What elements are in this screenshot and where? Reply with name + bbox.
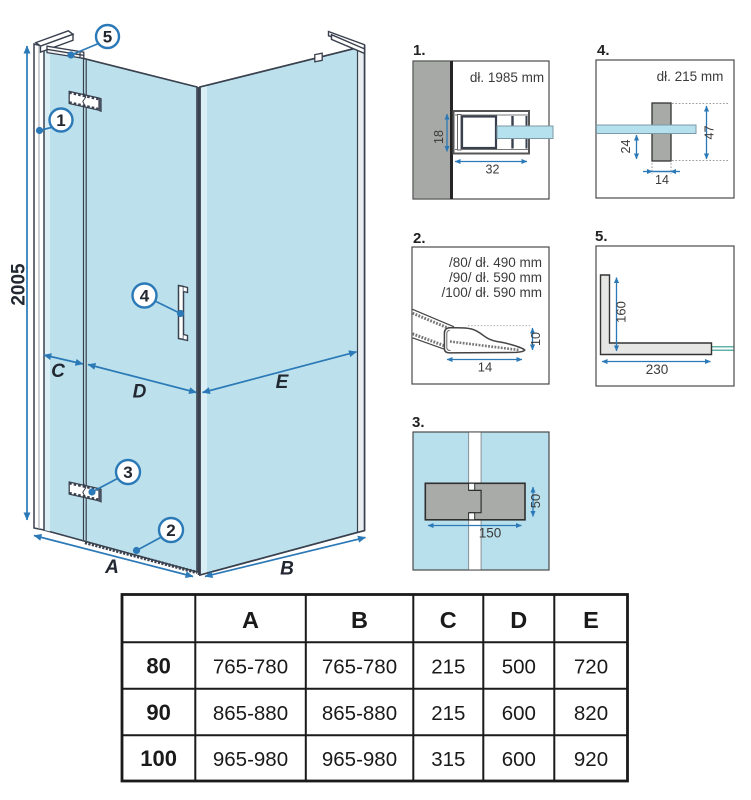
svg-text:600: 600 xyxy=(502,702,536,725)
svg-text:965-980: 965-980 xyxy=(213,748,288,771)
svg-text:765-780: 765-780 xyxy=(213,656,288,679)
svg-text:1.: 1. xyxy=(413,42,426,59)
svg-text:14: 14 xyxy=(655,173,669,187)
svg-text:dł. 1985 mm: dł. 1985 mm xyxy=(470,70,544,85)
svg-text:/90/ dł. 590 mm: /90/ dł. 590 mm xyxy=(449,270,542,285)
svg-text:18: 18 xyxy=(432,130,446,144)
svg-text:1: 1 xyxy=(56,111,65,130)
svg-text:32: 32 xyxy=(486,163,500,177)
svg-text:500: 500 xyxy=(502,656,536,679)
svg-text:315: 315 xyxy=(431,748,465,771)
svg-text:600: 600 xyxy=(502,748,536,771)
svg-text:14: 14 xyxy=(478,360,492,375)
svg-text:765-780: 765-780 xyxy=(322,656,397,679)
svg-text:965-980: 965-980 xyxy=(322,748,397,771)
svg-text:865-880: 865-880 xyxy=(213,702,288,725)
svg-text:150: 150 xyxy=(479,526,502,541)
svg-text:2: 2 xyxy=(166,521,175,540)
svg-text:24: 24 xyxy=(619,140,633,154)
svg-text:C: C xyxy=(51,361,65,382)
svg-text:4: 4 xyxy=(140,287,150,306)
svg-text:865-880: 865-880 xyxy=(322,702,397,725)
svg-text:5.: 5. xyxy=(595,228,608,245)
svg-text:A: A xyxy=(242,607,259,633)
svg-text:230: 230 xyxy=(646,362,669,377)
svg-text:/100/ dł. 590 mm: /100/ dł. 590 mm xyxy=(441,285,542,300)
svg-text:/80/ dł. 490 mm: /80/ dł. 490 mm xyxy=(449,255,542,270)
svg-text:D: D xyxy=(510,607,527,633)
svg-text:dł. 215 mm: dł. 215 mm xyxy=(657,69,724,84)
svg-text:B: B xyxy=(280,559,294,580)
svg-text:3.: 3. xyxy=(412,414,425,431)
svg-text:720: 720 xyxy=(574,656,608,679)
svg-text:47: 47 xyxy=(703,126,717,140)
svg-text:B: B xyxy=(351,607,368,633)
svg-text:80: 80 xyxy=(146,654,170,679)
svg-text:100: 100 xyxy=(140,746,177,771)
svg-text:4.: 4. xyxy=(597,42,610,59)
svg-text:10: 10 xyxy=(529,332,543,346)
svg-text:2005: 2005 xyxy=(9,263,30,306)
svg-text:E: E xyxy=(276,372,290,393)
svg-text:160: 160 xyxy=(614,301,629,323)
svg-text:920: 920 xyxy=(574,748,608,771)
svg-text:90: 90 xyxy=(146,700,170,725)
svg-text:215: 215 xyxy=(431,702,465,725)
svg-text:A: A xyxy=(104,557,119,578)
svg-text:5: 5 xyxy=(103,28,112,47)
svg-text:215: 215 xyxy=(431,656,465,679)
svg-text:C: C xyxy=(440,607,457,633)
svg-text:E: E xyxy=(583,607,599,633)
svg-text:3: 3 xyxy=(123,463,132,482)
svg-text:50: 50 xyxy=(528,494,543,508)
svg-text:2.: 2. xyxy=(413,230,426,247)
svg-text:D: D xyxy=(133,382,147,403)
svg-text:820: 820 xyxy=(574,702,608,725)
